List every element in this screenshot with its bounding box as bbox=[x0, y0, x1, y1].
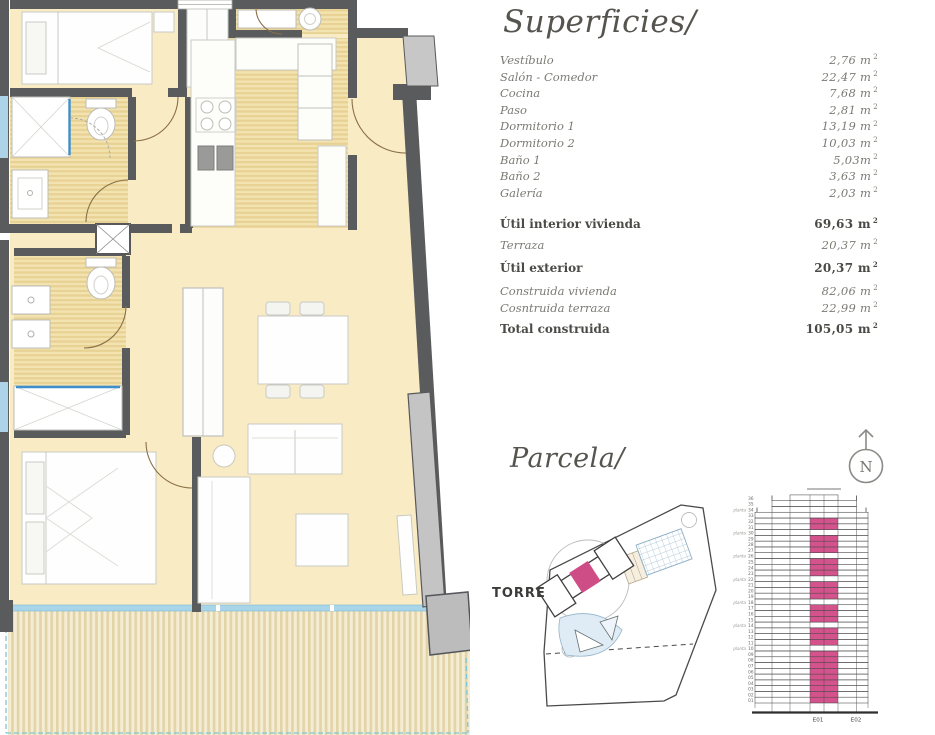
area-value: 22,99 m2 bbox=[822, 301, 878, 315]
superficies-row: Baño 15,03m2 bbox=[500, 153, 878, 170]
area-label: Terraza bbox=[500, 238, 544, 252]
area-value: 7,68 m2 bbox=[829, 86, 878, 100]
tower-floor-number: 27 bbox=[748, 548, 754, 553]
tower-floor-number: 36 bbox=[748, 496, 754, 501]
superficies-row: Cocina7,68 m2 bbox=[500, 86, 878, 103]
area-label: Baño 2 bbox=[500, 169, 541, 183]
window bbox=[0, 96, 8, 158]
area-label: Cosntruida terraza bbox=[500, 301, 610, 315]
bed-dormitorio1 bbox=[22, 452, 156, 584]
shaft bbox=[96, 224, 130, 254]
superficies-row: Útil exterior20,37 m2 bbox=[500, 260, 878, 277]
area-value: 20,37 m2 bbox=[822, 238, 878, 252]
area-label: Dormitorio 1 bbox=[500, 119, 575, 133]
tower-floor-number: 23 bbox=[748, 571, 754, 576]
tower-floor-number: 17 bbox=[748, 606, 754, 611]
area-label: Cocina bbox=[500, 86, 540, 100]
brochure-page: Superficies/ Vestíbulo2,76 m2Salón - Com… bbox=[0, 0, 935, 735]
tower-floor-number: 34 bbox=[748, 507, 754, 512]
area-label: Útil exterior bbox=[500, 261, 582, 275]
superficies-row: Dormitorio 210,03 m2 bbox=[500, 136, 878, 153]
area-value: 82,06 m2 bbox=[822, 284, 878, 298]
tower-floor-tag: planta bbox=[732, 623, 746, 628]
superficies-row: Salón - Comedor22,47 m2 bbox=[500, 70, 878, 87]
toilet-bath2 bbox=[86, 258, 116, 299]
tower-floor-number: 12 bbox=[748, 635, 754, 640]
bathtub bbox=[14, 386, 122, 430]
tower-floor-number: 28 bbox=[748, 542, 754, 547]
tower-floor-number: 11 bbox=[748, 640, 754, 645]
area-label: Construida vivienda bbox=[500, 284, 617, 298]
tower-floor-number: 01 bbox=[748, 698, 754, 703]
area-value: 5,03m2 bbox=[833, 153, 878, 167]
tower-floor-number: 31 bbox=[748, 525, 754, 530]
tower-floor-number: 32 bbox=[748, 519, 754, 524]
area-value: 3,63 m2 bbox=[829, 169, 878, 183]
tower-floor-tag: planta bbox=[732, 507, 746, 512]
superficies-row: Cosntruida terraza22,99 m2 bbox=[500, 301, 878, 318]
area-value: 105,05 m2 bbox=[806, 321, 878, 336]
tower-floor-number: 33 bbox=[748, 513, 754, 518]
area-label: Salón - Comedor bbox=[500, 70, 597, 84]
superficies-row: Galería2,03 m2 bbox=[500, 186, 878, 203]
tower-floor-number: 04 bbox=[748, 681, 754, 686]
area-value: 22,47 m2 bbox=[822, 70, 878, 84]
bed-dormitorio2 bbox=[22, 12, 152, 84]
tower-floor-number: 19 bbox=[748, 594, 754, 599]
superficies-row: Total construida105,05 m2 bbox=[500, 321, 878, 338]
superficies-row: Terraza20,37 m2 bbox=[500, 238, 878, 255]
superficies-row: Paso2,81 m2 bbox=[500, 103, 878, 120]
area-value: 2,03 m2 bbox=[829, 186, 878, 200]
area-label: Vestíbulo bbox=[500, 53, 554, 67]
floor-plan bbox=[0, 0, 470, 735]
terrace-deck bbox=[8, 611, 470, 735]
toilet bbox=[86, 99, 116, 140]
tower-floor-number: 02 bbox=[748, 692, 754, 697]
tower-floor-number: 09 bbox=[748, 652, 754, 657]
coffee-table bbox=[296, 514, 348, 566]
tower-floor-tag: planta bbox=[732, 646, 746, 651]
tower-floor-number: 29 bbox=[748, 536, 754, 541]
superficies-title: Superficies/ bbox=[503, 4, 697, 40]
area-value: 2,81 m2 bbox=[829, 103, 878, 117]
superficies-row: Vestíbulo2,76 m2 bbox=[500, 53, 878, 70]
tower-floor-number: 08 bbox=[748, 658, 754, 663]
washer bbox=[238, 8, 321, 30]
area-label: Galería bbox=[500, 186, 543, 200]
corner-block bbox=[403, 36, 438, 86]
terrace-divider bbox=[426, 592, 470, 655]
tower-floor-number: 25 bbox=[748, 559, 754, 564]
tower-floor-number: 26 bbox=[748, 554, 754, 559]
parcela-title: Parcela/ bbox=[510, 443, 625, 474]
tower-floor-number: 30 bbox=[748, 531, 754, 536]
torre-label: TORRE bbox=[492, 586, 546, 601]
compass-label: N bbox=[859, 458, 872, 476]
area-label: Total construida bbox=[500, 322, 610, 336]
tower-floor-number: 06 bbox=[748, 669, 754, 674]
tower-floor-number: 20 bbox=[748, 588, 754, 593]
site-plan: TORRE bbox=[478, 494, 730, 735]
tower-elevation-diagram: 01020304050607080910planta11121314planta… bbox=[728, 480, 935, 735]
area-value: 2,76 m2 bbox=[829, 53, 878, 67]
entrance-label-e02: E02 bbox=[851, 718, 862, 724]
tower-floor-number: 14 bbox=[748, 623, 754, 628]
wardrobe bbox=[183, 288, 223, 436]
area-value: 69,63 m2 bbox=[814, 216, 878, 231]
area-label: Baño 1 bbox=[500, 153, 541, 167]
dining-set bbox=[258, 302, 348, 398]
tower-floor-tag: planta bbox=[732, 554, 746, 559]
nightstand bbox=[154, 12, 174, 32]
tower-floor-number: 16 bbox=[748, 612, 754, 617]
tower-floor-number: 22 bbox=[748, 577, 754, 582]
tower-floor-number: 18 bbox=[748, 600, 754, 605]
superficies-table: Vestíbulo2,76 m2Salón - Comedor22,47 m2C… bbox=[500, 53, 878, 338]
tower-floor-number: 21 bbox=[748, 583, 754, 588]
superficies-row: Dormitorio 113,19 m2 bbox=[500, 119, 878, 136]
top-window bbox=[178, 0, 232, 9]
tower-floor-number: 07 bbox=[748, 664, 754, 669]
sink-bath1 bbox=[12, 170, 48, 218]
superficies-row: Útil interior vivienda69,63 m2 bbox=[500, 216, 878, 233]
tower-floor-number: 13 bbox=[748, 629, 754, 634]
tower-floor-number: 15 bbox=[748, 617, 754, 622]
entrance-label-e01: E01 bbox=[813, 718, 824, 724]
tower-floor-number: 35 bbox=[748, 502, 754, 507]
area-value: 13,19 m2 bbox=[822, 119, 878, 133]
tower-floor-tag: planta bbox=[732, 577, 746, 582]
area-label: Paso bbox=[500, 103, 527, 117]
area-value: 10,03 m2 bbox=[822, 136, 878, 150]
superficies-row: Baño 23,63 m2 bbox=[500, 169, 878, 186]
terrace-glass bbox=[10, 605, 434, 611]
tower-floor-number: 05 bbox=[748, 675, 754, 680]
tower-floor-tag: planta bbox=[732, 600, 746, 605]
tower-floor-tag: planta bbox=[732, 531, 746, 536]
area-value: 20,37 m2 bbox=[814, 260, 878, 275]
tower-floor-number: 24 bbox=[748, 565, 754, 570]
area-label: Útil interior vivienda bbox=[500, 217, 641, 231]
shower bbox=[12, 97, 70, 157]
tower-floor-number: 10 bbox=[748, 646, 754, 651]
area-label: Dormitorio 2 bbox=[500, 136, 575, 150]
window bbox=[0, 382, 8, 432]
superficies-row: Construida vivienda82,06 m2 bbox=[500, 284, 878, 301]
tower-floor-number: 03 bbox=[748, 687, 754, 692]
